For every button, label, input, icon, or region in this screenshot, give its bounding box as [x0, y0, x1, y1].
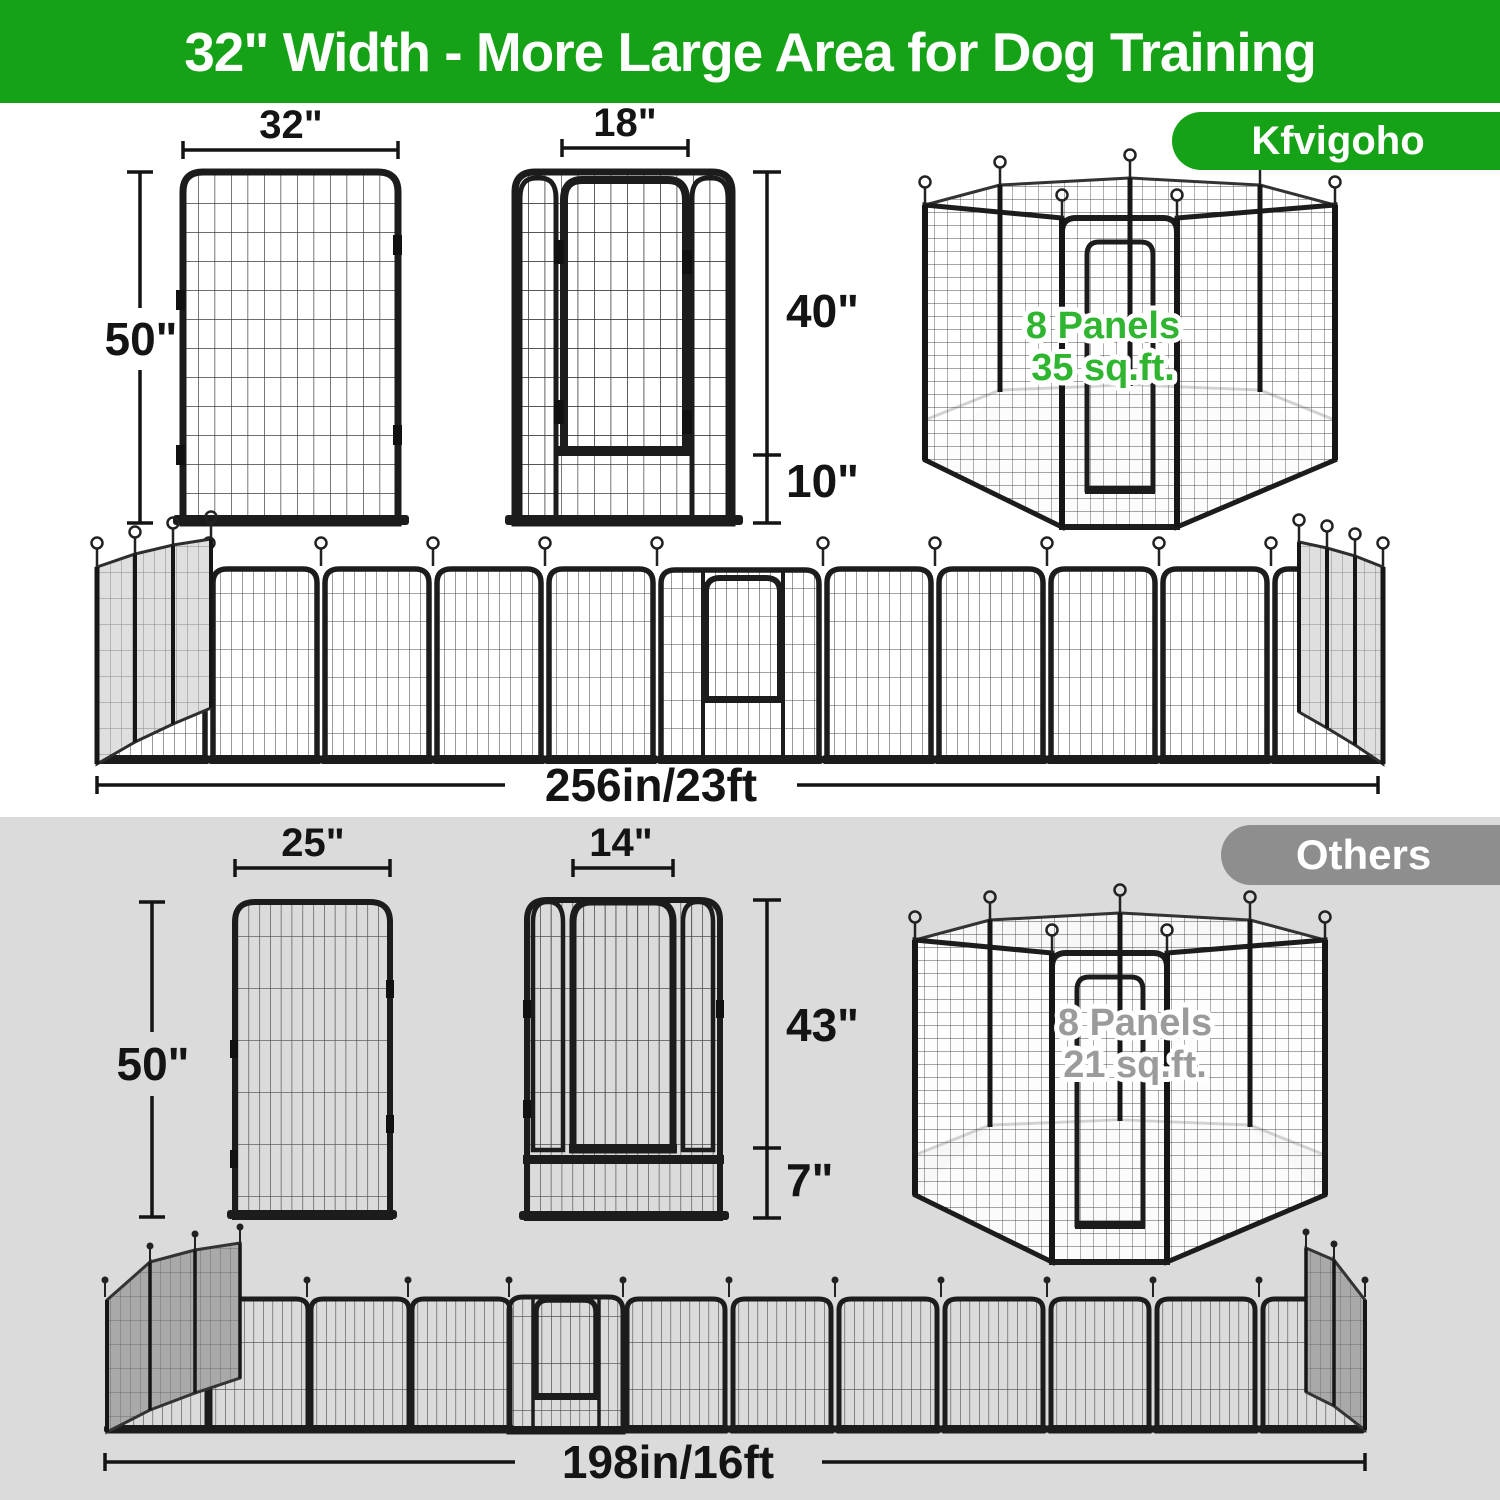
header-banner: 32" Width - More Large Area for Dog Trai… — [0, 0, 1500, 103]
others-pen-panels-label: 8 Panels — [1058, 1002, 1212, 1044]
kfvigoho-pen-panels-label: 8 Panels — [1026, 305, 1180, 347]
diagram-canvas: 32" 50" 18" 40" 10" 8 Panels 35 sq.ft. — [0, 0, 1500, 1500]
kfvigoho-pen-area-label: 35 sq.ft. — [1031, 347, 1175, 389]
others-door-height-label: 43" — [786, 999, 859, 1051]
kfvigoho-door-width-label: 18" — [593, 101, 656, 145]
kfvigoho-panel-diagram: 32" 50" — [105, 103, 409, 525]
others-door-bottom-label: 7" — [786, 1154, 833, 1206]
others-panel-height-label: 50" — [117, 1038, 190, 1090]
kfvigoho-panel-height-label: 50" — [105, 313, 178, 365]
product-infographic: 32" 50" 18" 40" 10" 8 Panels 35 sq.ft. — [0, 0, 1500, 1500]
kfvigoho-door-panel-diagram: 18" 40" 10" — [505, 101, 859, 525]
brand-badge: Kfvigoho — [1172, 112, 1500, 170]
others-door-width-label: 14" — [589, 821, 652, 865]
kfvigoho-panel-width-label: 32" — [259, 103, 322, 147]
kfvigoho-pen-photo: 8 Panels 35 sq.ft. — [920, 150, 1341, 528]
others-badge: Others — [1221, 825, 1500, 885]
others-pen-photo: 8 Panels 21 sq.ft. — [910, 885, 1331, 1263]
others-badge-label: Others — [1296, 831, 1431, 879]
others-row-length-label: 198in/16ft — [562, 1436, 774, 1488]
header-title: 32" Width - More Large Area for Dog Trai… — [184, 20, 1316, 84]
kfvigoho-panel-row: 256in/23ft — [92, 512, 1389, 812]
others-pen-area-label: 21 sq.ft. — [1063, 1044, 1207, 1086]
others-panel-width-label: 25" — [281, 821, 344, 865]
kfvigoho-row-length-label: 256in/23ft — [545, 759, 757, 811]
kfvigoho-door-bottom-label: 10" — [786, 455, 859, 507]
kfvigoho-door-height-label: 40" — [786, 285, 859, 337]
brand-badge-label: Kfvigoho — [1251, 119, 1424, 164]
